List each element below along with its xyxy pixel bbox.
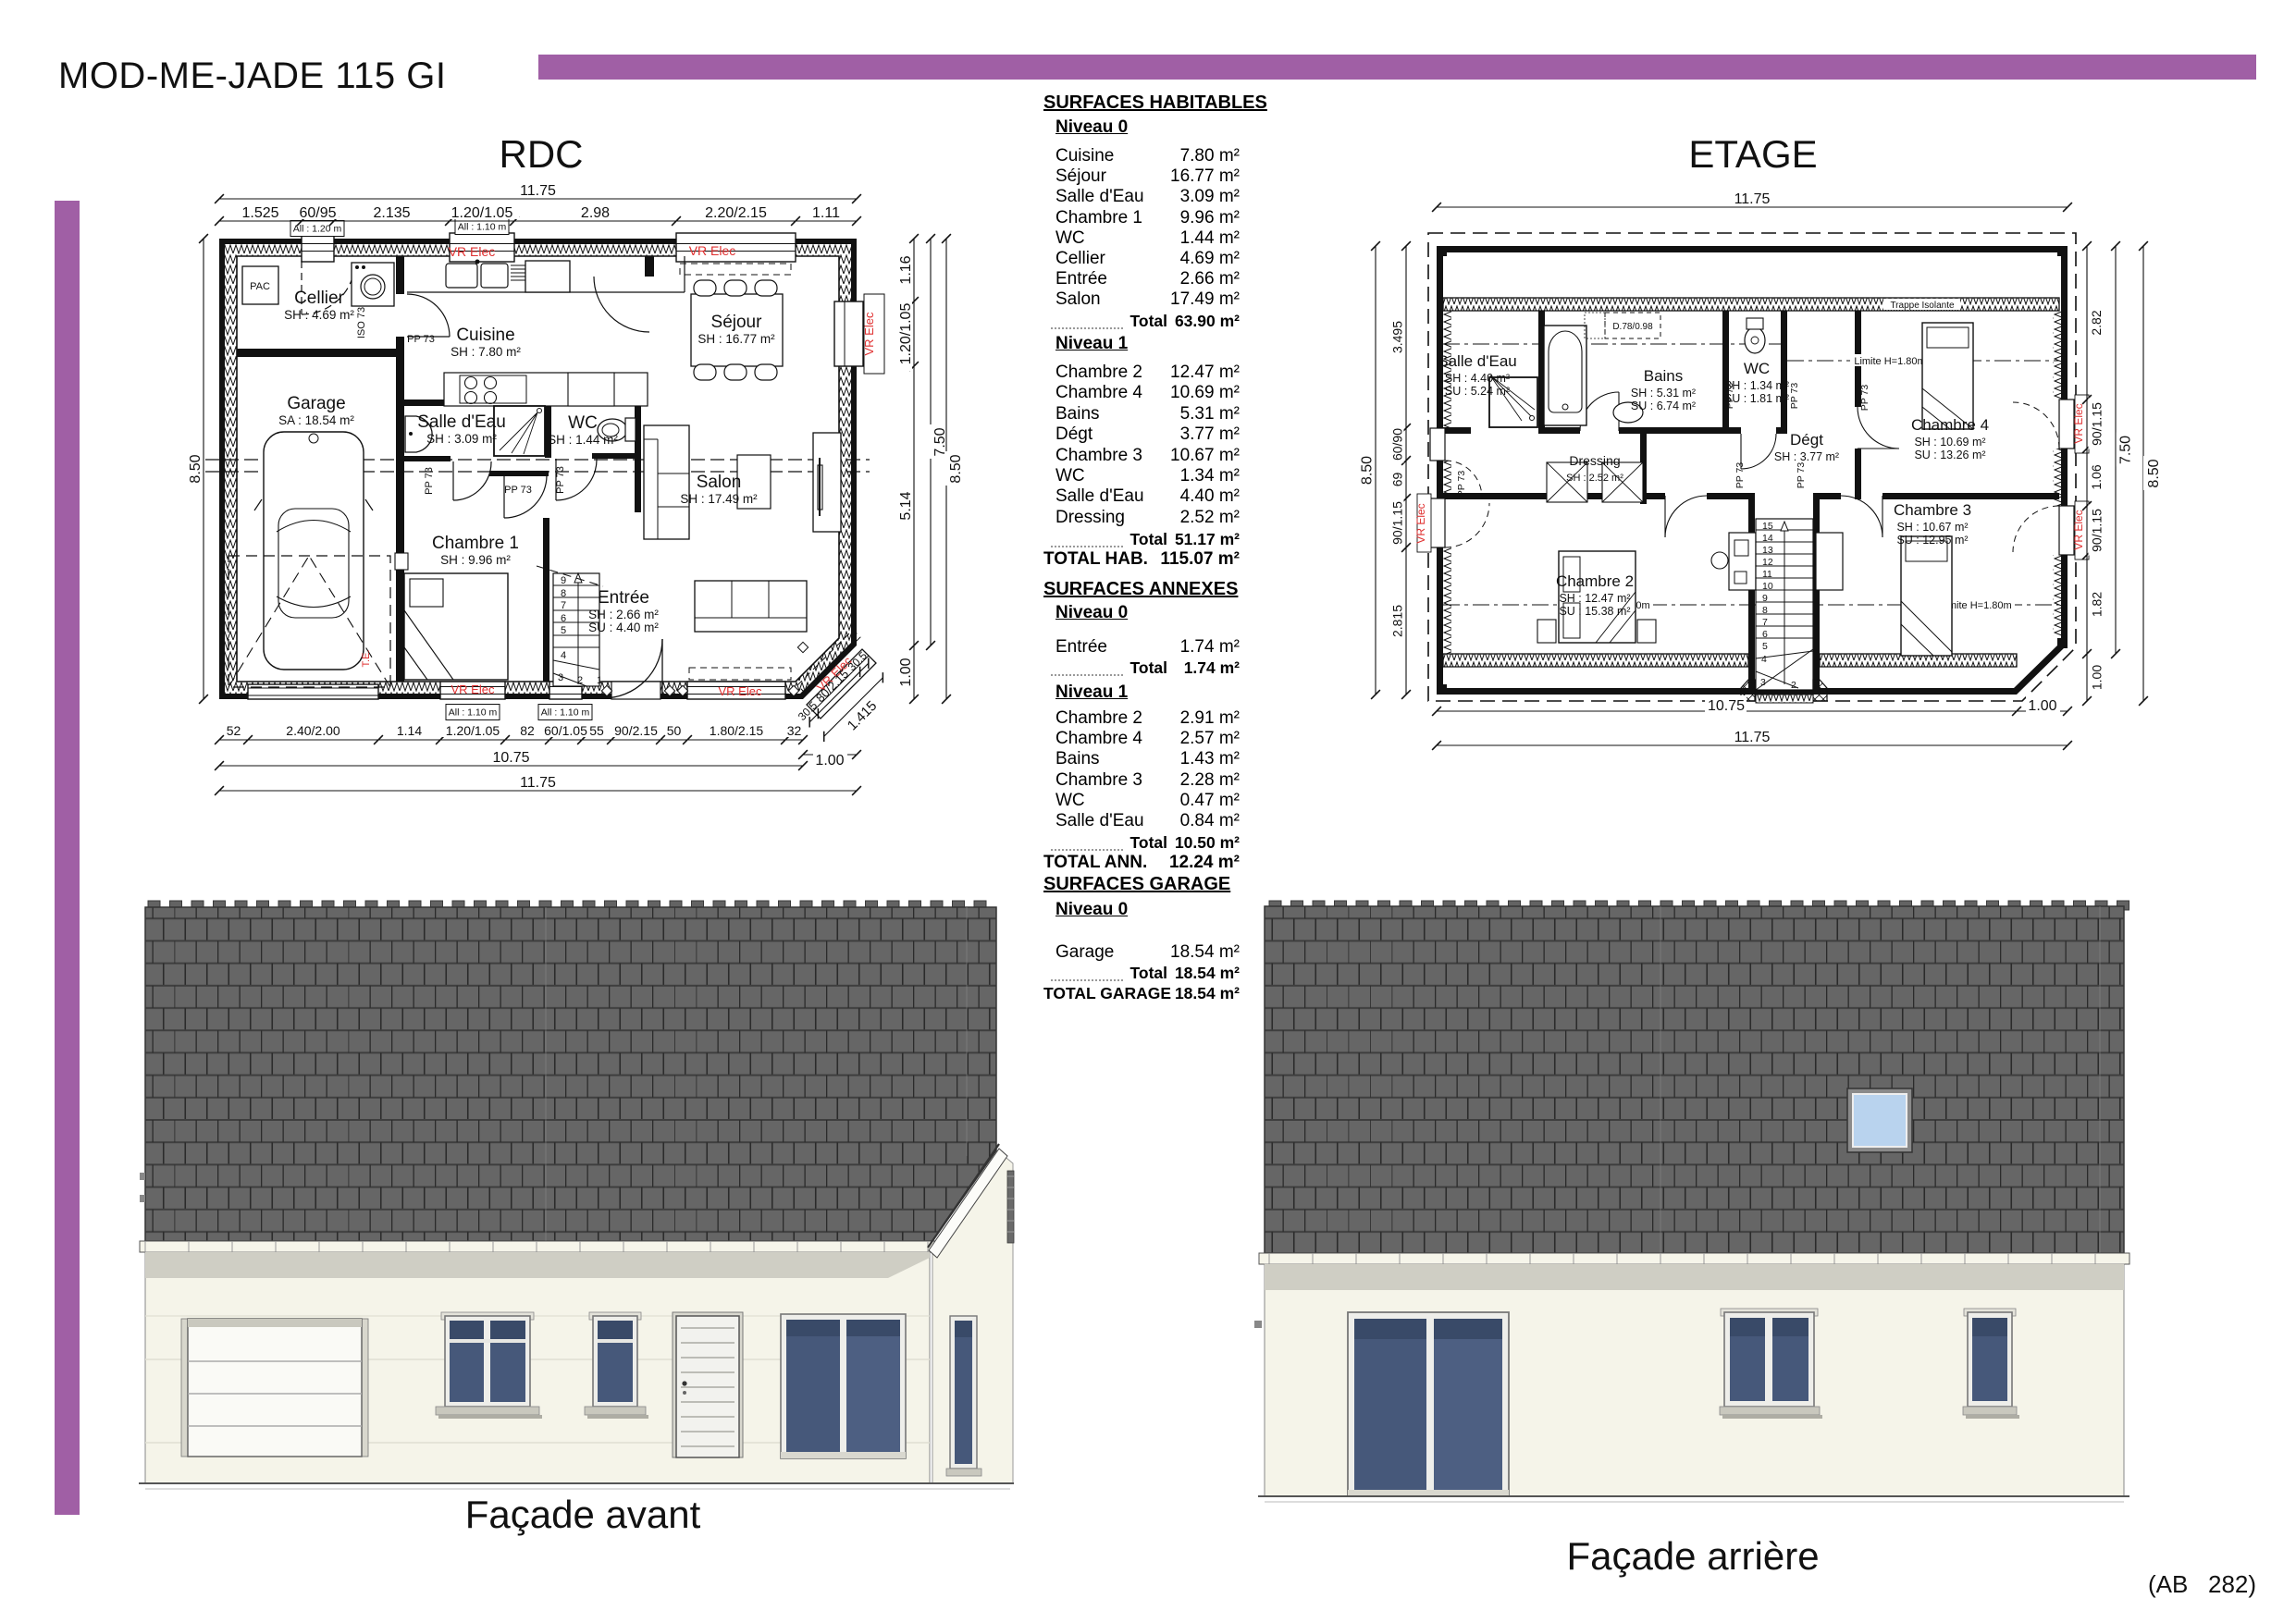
svg-text:SH : 4.40 m²: SH : 4.40 m² <box>1445 372 1510 385</box>
svg-text:10.75: 10.75 <box>492 750 529 766</box>
svg-text:55: 55 <box>589 723 604 738</box>
svg-text:10: 10 <box>1762 581 1773 592</box>
svg-text:1.415: 1.415 <box>845 698 881 734</box>
svg-text:Chambre 2: Chambre 2 <box>1556 572 1634 590</box>
svg-text:8.50: 8.50 <box>948 454 964 483</box>
svg-text:T.E.: T.E. <box>361 650 372 668</box>
svg-text:1.80/2.15: 1.80/2.15 <box>710 723 764 738</box>
svg-text:82: 82 <box>520 723 535 738</box>
svg-text:SU : 1.81 m²: SU : 1.81 m² <box>1724 392 1789 405</box>
svg-text:VR Elec: VR Elec <box>449 244 496 259</box>
svg-text:1.20/1.05: 1.20/1.05 <box>898 303 914 365</box>
svg-text:6: 6 <box>1762 629 1768 640</box>
svg-text:60/90: 60/90 <box>1390 428 1405 461</box>
svg-text:Salon: Salon <box>697 473 742 492</box>
svg-text:PP 73: PP 73 <box>504 485 532 496</box>
svg-text:Séjour: Séjour <box>711 313 763 332</box>
svg-text:5: 5 <box>1762 641 1768 652</box>
svg-text:SH : 12.47 m²: SH : 12.47 m² <box>1559 592 1630 605</box>
svg-text:SU : 5.24 m²: SU : 5.24 m² <box>1445 385 1510 398</box>
svg-text:SH : 7.80 m²: SH : 7.80 m² <box>451 345 521 359</box>
svg-text:8.50: 8.50 <box>2146 459 2162 487</box>
svg-text:90/1.15: 90/1.15 <box>2090 402 2105 446</box>
svg-text:SA : 18.54 m²: SA : 18.54 m² <box>278 413 354 427</box>
svg-text:SU : 4.40 m²: SU : 4.40 m² <box>588 621 659 634</box>
svg-text:SU : 6.74 m²: SU : 6.74 m² <box>1631 400 1696 412</box>
svg-text:Entrée: Entrée <box>598 588 649 608</box>
svg-text:90/2.15: 90/2.15 <box>614 723 658 738</box>
svg-text:SU : 13.26 m²: SU : 13.26 m² <box>1914 449 1985 461</box>
svg-text:1.20/1.05: 1.20/1.05 <box>451 205 513 221</box>
svg-text:Garage: Garage <box>287 394 345 413</box>
svg-text:SH : 1.44 m²: SH : 1.44 m² <box>548 433 618 447</box>
svg-text:SH : 9.96 m²: SH : 9.96 m² <box>440 553 511 567</box>
svg-text:2: 2 <box>577 675 583 686</box>
svg-text:1.00: 1.00 <box>2028 698 2056 714</box>
svg-text:1.16: 1.16 <box>898 255 914 284</box>
svg-text:VR Elec: VR Elec <box>451 682 495 696</box>
svg-text:Salle d'Eau: Salle d'Eau <box>1438 352 1516 370</box>
svg-text:SH : 5.31 m²: SH : 5.31 m² <box>1631 387 1696 400</box>
svg-text:All : 1.10 m: All : 1.10 m <box>449 707 498 719</box>
svg-text:1.14: 1.14 <box>397 723 422 738</box>
svg-text:PP 73: PP 73 <box>555 466 566 494</box>
svg-text:Trappe Isolante: Trappe Isolante <box>1890 301 1955 311</box>
svg-text:SH : 2.66 m²: SH : 2.66 m² <box>588 608 659 621</box>
svg-text:1.00: 1.00 <box>898 658 914 686</box>
svg-text:1.00: 1.00 <box>2090 665 2105 690</box>
svg-text:SH : 10.67 m²: SH : 10.67 m² <box>1896 521 1968 534</box>
svg-text:1.82: 1.82 <box>2090 592 2105 617</box>
svg-text:PAC: PAC <box>250 281 270 292</box>
svg-text:9: 9 <box>1762 593 1768 604</box>
svg-text:14: 14 <box>1762 533 1773 544</box>
svg-text:2.20/2.15: 2.20/2.15 <box>705 205 767 221</box>
svg-text:5: 5 <box>561 625 566 636</box>
svg-text:Salle d'Eau: Salle d'Eau <box>417 412 506 432</box>
svg-text:Chambre 3: Chambre 3 <box>1894 501 1971 519</box>
svg-text:2.82: 2.82 <box>2089 310 2104 335</box>
svg-text:11.75: 11.75 <box>1734 730 1771 745</box>
svg-text:7: 7 <box>561 600 566 611</box>
svg-text:VR Elec: VR Elec <box>862 312 876 355</box>
svg-text:PP 73: PP 73 <box>424 467 435 495</box>
svg-text:Dégt: Dégt <box>1790 431 1823 449</box>
svg-text:PP 73: PP 73 <box>1456 471 1467 498</box>
svg-text:1.525: 1.525 <box>241 205 278 221</box>
svg-text:50: 50 <box>667 723 682 738</box>
svg-text:11.75: 11.75 <box>520 183 556 199</box>
svg-text:3: 3 <box>1760 677 1766 688</box>
svg-text:All : 1.20 m: All : 1.20 m <box>293 224 342 235</box>
svg-text:PP 73: PP 73 <box>1789 383 1800 410</box>
svg-text:90/1.15: 90/1.15 <box>1390 501 1405 545</box>
svg-text:D.78/0.98: D.78/0.98 <box>1612 322 1653 332</box>
svg-text:PP 73: PP 73 <box>407 334 435 345</box>
svg-text:15: 15 <box>1762 521 1773 532</box>
svg-text:60/95: 60/95 <box>299 205 336 221</box>
svg-text:Chambre 1: Chambre 1 <box>432 534 519 553</box>
svg-text:3: 3 <box>558 672 563 683</box>
svg-text:Cellier: Cellier <box>294 289 345 308</box>
svg-text:5.14: 5.14 <box>898 491 914 520</box>
svg-text:69: 69 <box>1390 473 1405 487</box>
svg-text:60/1.05: 60/1.05 <box>544 723 587 738</box>
svg-text:32: 32 <box>787 723 802 738</box>
svg-text:WC: WC <box>1744 360 1770 377</box>
svg-text:8: 8 <box>1762 605 1768 616</box>
svg-text:6: 6 <box>561 613 566 624</box>
svg-text:11.75: 11.75 <box>520 775 556 791</box>
svg-text:8: 8 <box>561 588 566 599</box>
svg-text:8.50: 8.50 <box>188 454 204 483</box>
svg-text:1: 1 <box>597 675 602 686</box>
svg-text:2.98: 2.98 <box>581 205 610 221</box>
svg-text:All : 1.10 m: All : 1.10 m <box>458 222 507 233</box>
svg-text:52: 52 <box>227 723 241 738</box>
svg-text:13: 13 <box>1762 545 1773 556</box>
svg-text:1.20/1.05: 1.20/1.05 <box>446 723 500 738</box>
svg-text:7: 7 <box>1762 617 1768 628</box>
svg-text:8.50: 8.50 <box>1360 456 1376 485</box>
svg-text:VR Elec: VR Elec <box>2072 510 2085 549</box>
svg-text:SH : 3.77 m²: SH : 3.77 m² <box>1774 450 1839 463</box>
svg-text:SH : 17.49 m²: SH : 17.49 m² <box>680 492 758 506</box>
svg-text:3.495: 3.495 <box>1390 321 1405 353</box>
svg-text:VR Elec: VR Elec <box>689 243 736 258</box>
svg-text:1.00: 1.00 <box>815 753 844 768</box>
svg-text:ISO 73: ISO 73 <box>356 307 367 338</box>
svg-text:7.50: 7.50 <box>2118 436 2134 464</box>
svg-text:90/1.15: 90/1.15 <box>2090 509 2105 552</box>
svg-text:12: 12 <box>1762 557 1773 568</box>
svg-text:SU : 12.95 m²: SU : 12.95 m² <box>1896 534 1968 547</box>
svg-text:2.135: 2.135 <box>373 205 410 221</box>
svg-text:4: 4 <box>561 650 566 661</box>
svg-text:All : 1.10 m: All : 1.10 m <box>541 707 590 719</box>
svg-text:VR Elec: VR Elec <box>719 684 762 698</box>
svg-text:PP 73: PP 73 <box>1859 385 1870 412</box>
svg-text:WC: WC <box>568 413 598 433</box>
svg-text:SH : 4.69 m²: SH : 4.69 m² <box>284 308 354 322</box>
svg-text:1.11: 1.11 <box>812 205 840 221</box>
svg-text:11: 11 <box>1762 569 1772 580</box>
svg-text:VR Elec: VR Elec <box>2072 403 2085 443</box>
svg-text:2.815: 2.815 <box>1390 605 1405 637</box>
svg-text:PP 73: PP 73 <box>1734 462 1746 489</box>
svg-text:Limite H=1.80m: Limite H=1.80m <box>1854 356 1925 367</box>
svg-text:10.75: 10.75 <box>1708 698 1745 714</box>
svg-text:4: 4 <box>1761 654 1767 665</box>
svg-text:SH : 3.09 m²: SH : 3.09 m² <box>426 432 497 446</box>
svg-text:SH : 16.77 m²: SH : 16.77 m² <box>697 332 775 346</box>
svg-text:11.75: 11.75 <box>1734 191 1771 207</box>
svg-text:SH : 2.52 m²: SH : 2.52 m² <box>1566 473 1623 484</box>
svg-text:2.40/2.00: 2.40/2.00 <box>286 723 340 738</box>
svg-text:Cuisine: Cuisine <box>456 326 514 345</box>
svg-text:Bains: Bains <box>1644 367 1684 385</box>
svg-text:Dressing: Dressing <box>1569 453 1620 468</box>
svg-text:2: 2 <box>1791 680 1796 691</box>
svg-text:1.06: 1.06 <box>2089 464 2104 489</box>
svg-text:SH : 1.34 m²: SH : 1.34 m² <box>1724 379 1789 392</box>
svg-text:VR Elec: VR Elec <box>1414 503 1427 543</box>
svg-text:9: 9 <box>561 575 566 586</box>
svg-text:PP 73: PP 73 <box>1796 462 1807 489</box>
svg-text:SU : 15.38 m²: SU : 15.38 m² <box>1559 605 1630 618</box>
svg-text:SH : 10.69 m²: SH : 10.69 m² <box>1914 436 1985 449</box>
svg-text:Chambre 4: Chambre 4 <box>1911 416 1989 434</box>
